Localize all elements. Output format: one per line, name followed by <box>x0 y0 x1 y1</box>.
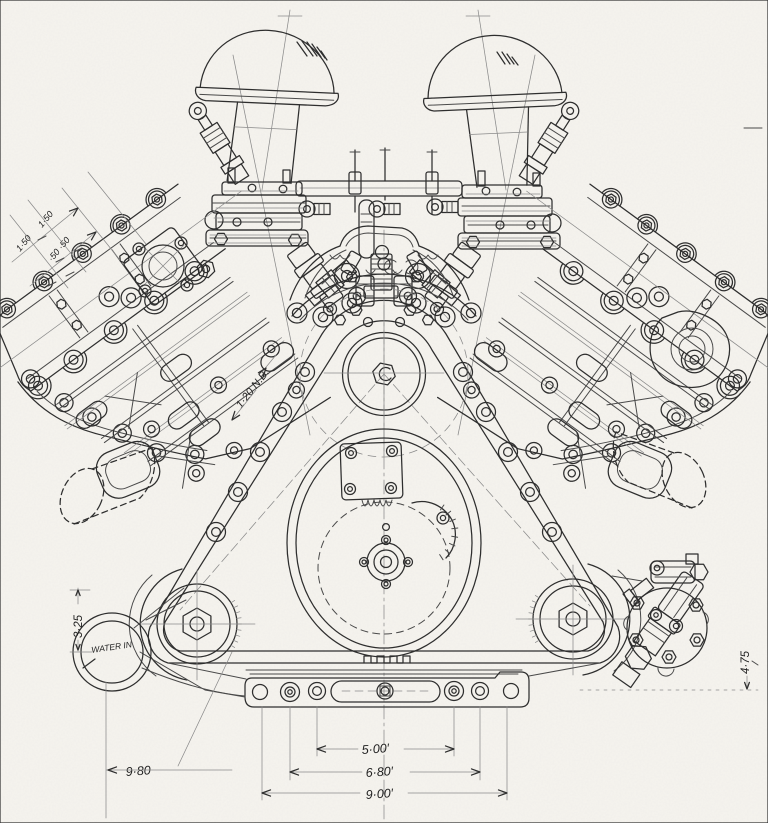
svg-text:5·00′: 5·00′ <box>361 741 390 757</box>
svg-text:9·00′: 9·00′ <box>365 786 394 802</box>
svg-text:4·75: 4·75 <box>740 650 752 674</box>
svg-text:6·80′: 6·80′ <box>365 764 394 780</box>
svg-text:1·50: 1·50 <box>14 233 33 253</box>
svg-text:1·50: 1·50 <box>36 209 55 229</box>
svg-text:9·80: 9·80 <box>125 763 151 779</box>
svg-text:WATER IN: WATER IN <box>91 639 134 655</box>
svg-text:3·25: 3·25 <box>73 614 85 638</box>
